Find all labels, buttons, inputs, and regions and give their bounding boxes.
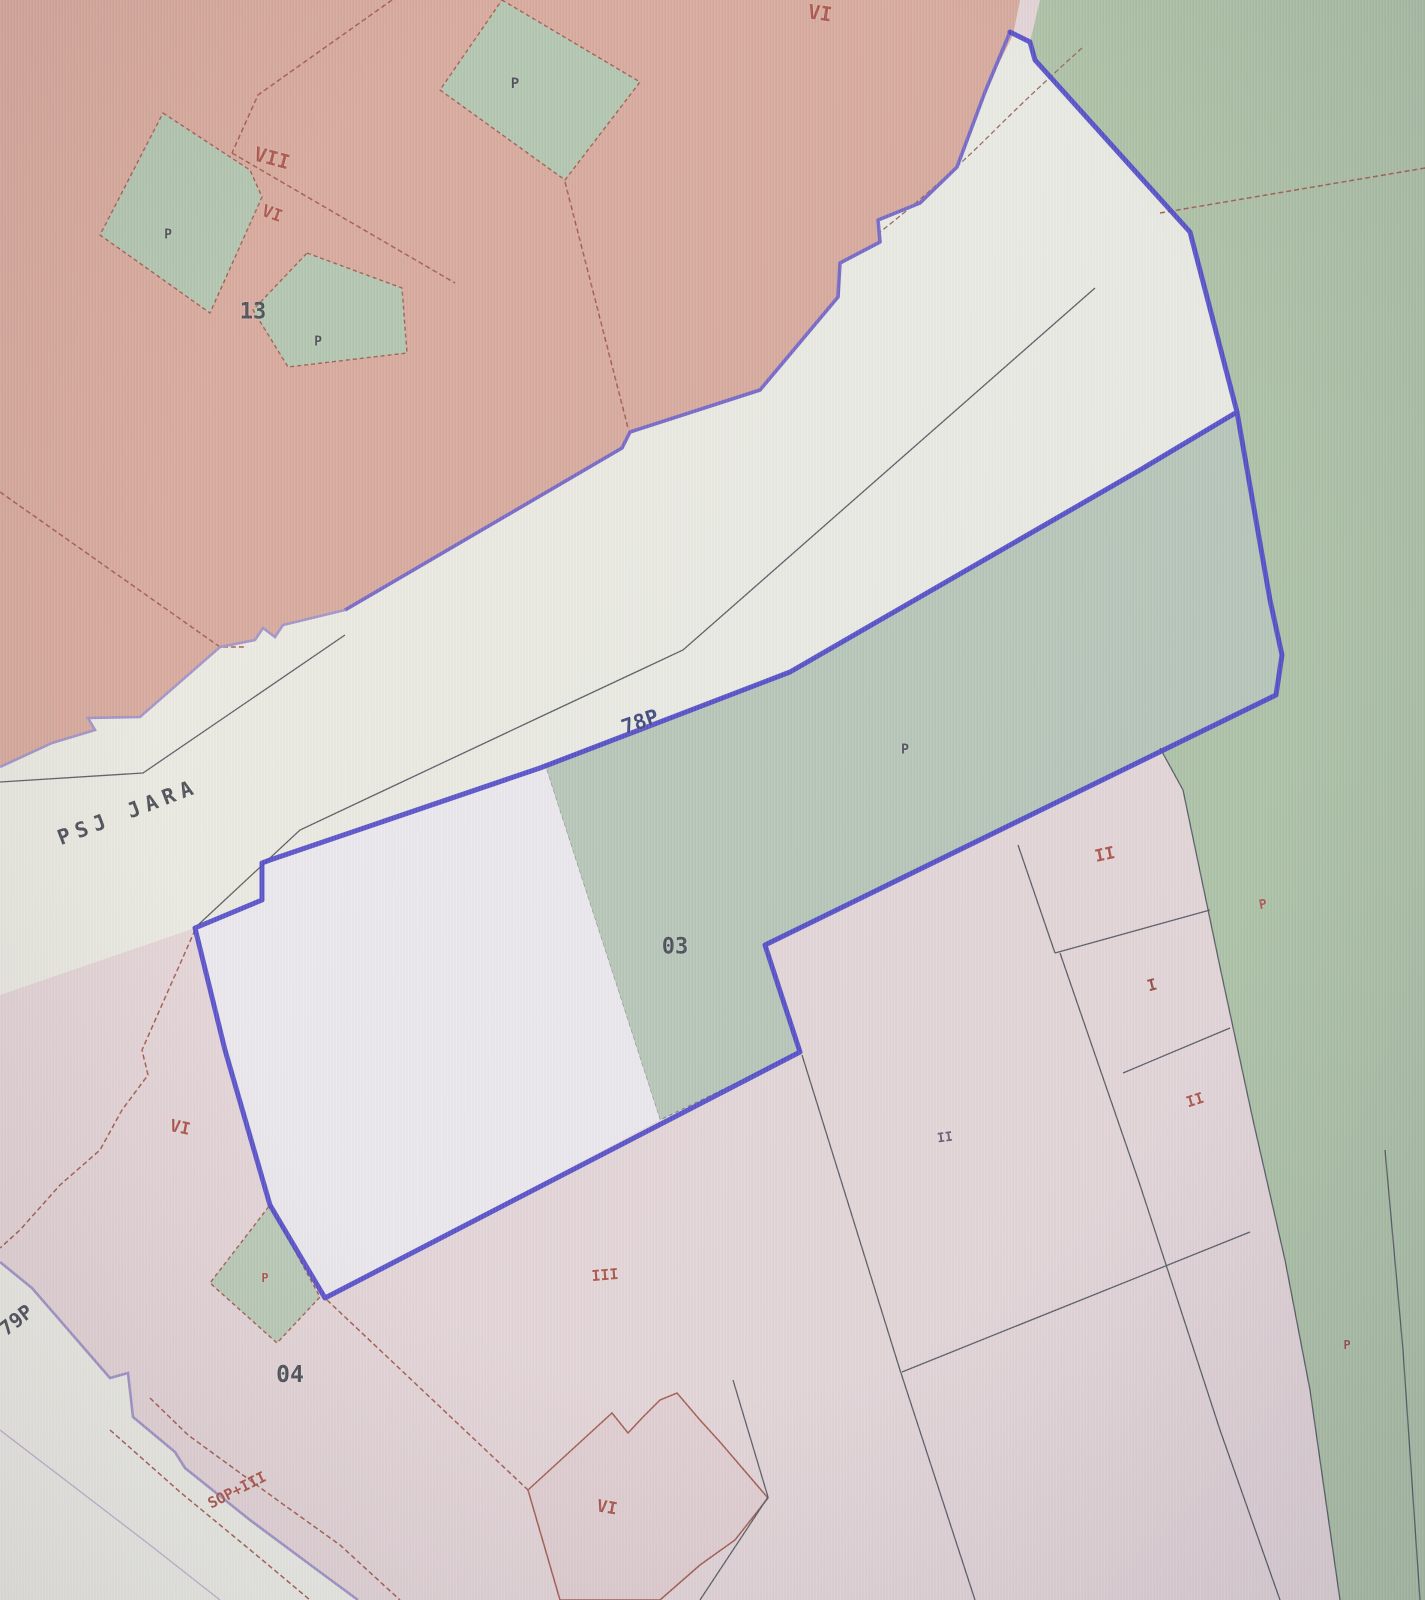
zone-label-ii-east1: II (1093, 843, 1117, 867)
zone-label-ii-mid: II (936, 1129, 954, 1146)
zone-label-vi-bottom: VI (595, 1496, 619, 1519)
parcel-label-p-top: P (511, 76, 519, 92)
parcel-label-p-nw1: P (164, 228, 172, 243)
zone-label-vi-west: VI (168, 1116, 192, 1140)
map-canvas[interactable]: VI VII VI P 13 P P PSJ JARA 78P P 03 II … (0, 0, 1425, 1600)
map-geometry (0, 0, 1425, 1600)
block-label-04: 04 (276, 1362, 304, 1388)
parcel-label-p-nw2: P (314, 335, 322, 350)
parcel-label-p-central: P (901, 743, 909, 758)
parcel-label-p-se: P (1343, 1338, 1350, 1352)
zone-label-vi-top: VI (806, 0, 833, 27)
block-label-03: 03 (662, 935, 689, 960)
zone-label-iii: III (591, 1265, 620, 1285)
parcel-label-p-sw: P (261, 1271, 268, 1285)
block-label-13: 13 (240, 300, 267, 325)
